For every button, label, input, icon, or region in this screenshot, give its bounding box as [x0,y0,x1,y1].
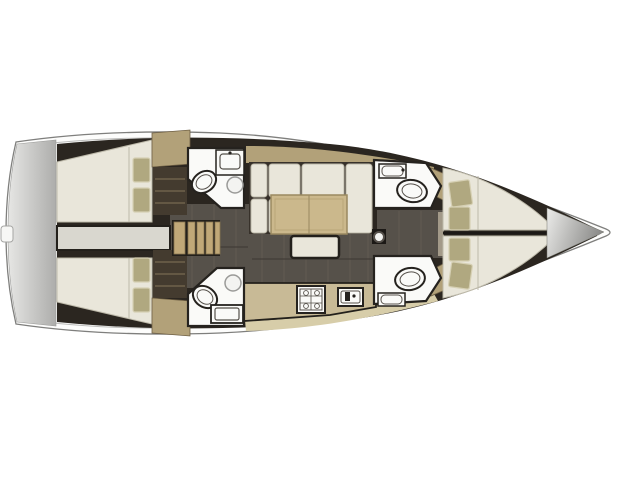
yacht-floorplan-page [0,0,640,480]
floor-fwd-corridor [377,210,443,258]
companionway-step [206,222,213,254]
bow-anchor-locker [547,208,604,258]
yacht-floorplan-diagram [0,0,640,480]
galley-faucet [345,292,350,301]
salon-stool [291,236,339,258]
companionway-step [215,222,220,254]
engine-compartment [57,226,170,250]
locker-starboard [152,298,190,336]
aft-head-port-shower-drain [227,177,243,193]
pillow [133,258,150,282]
locker-port [152,130,190,167]
galley-faucet-knob [352,294,355,297]
transom-swim-platform [8,140,56,326]
fwd-head-port-faucet [401,168,404,171]
pillow [449,238,470,261]
swim-ladder [1,226,13,242]
sofa-back-cushion [251,164,267,197]
companionway-step [197,222,204,254]
mast-post [374,232,384,242]
sofa-chaise-cushion [346,164,372,233]
companionway-step [188,222,195,254]
pillow [133,288,150,312]
sofa-back-cushion [302,164,344,197]
pillow [449,207,470,230]
aft-head-starboard-shower-drain [225,275,241,291]
aft-head-port-faucet [228,151,231,154]
pillow [133,158,150,182]
sofa-back-cushion [269,164,300,197]
sofa-seat-cushion [251,199,267,233]
pillow [448,180,472,208]
companionway-step [174,222,185,254]
pillow [133,188,150,212]
pillow [448,262,472,290]
